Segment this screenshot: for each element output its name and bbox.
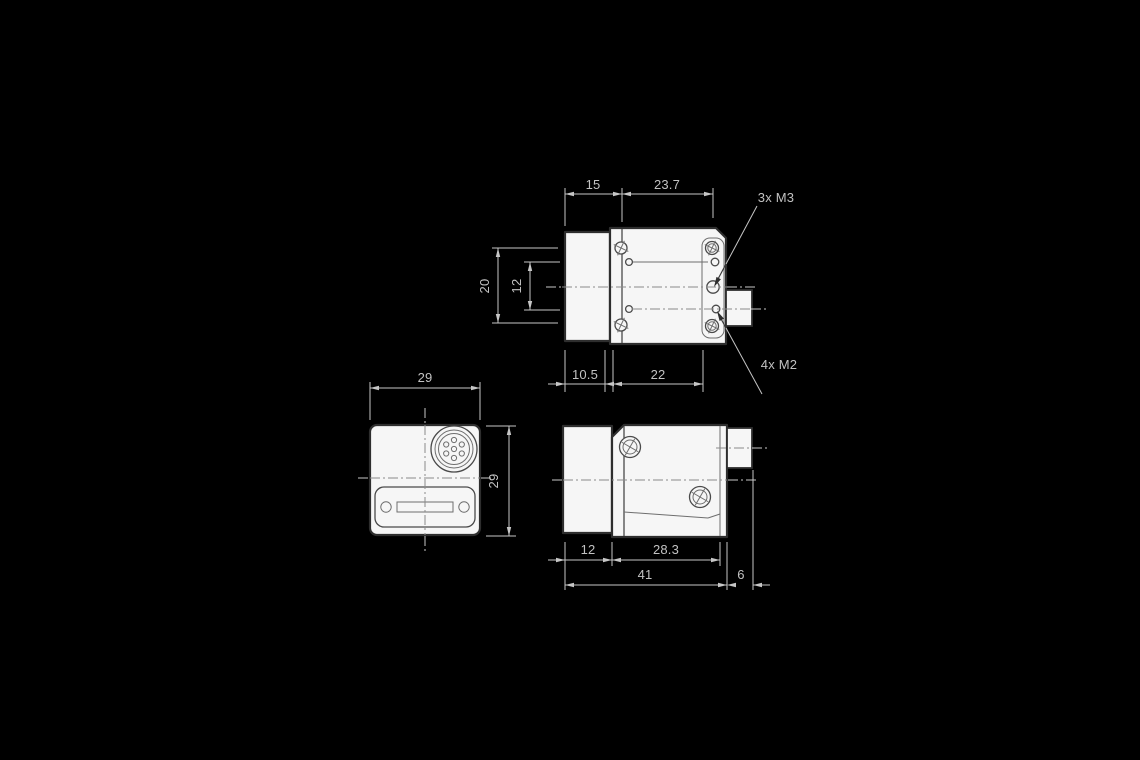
dim-label-front-height: 29 <box>486 474 501 489</box>
technical-drawing-canvas: 15 23.7 10.5 22 <box>0 0 1140 760</box>
dim-label-lens-bottom: 10.5 <box>572 367 598 382</box>
dim-label-hole-span-inner: 12 <box>509 279 524 294</box>
m2-thread-label: 4x M2 <box>761 357 797 372</box>
dim-label-total-length: 41 <box>638 567 653 582</box>
dim-label-connector-depth: 6 <box>737 567 744 582</box>
dim-label-lens-offset: 15 <box>586 177 601 192</box>
dim-label-hole-span-outer: 20 <box>477 279 492 294</box>
dim-label-body-top: 23.7 <box>654 177 680 192</box>
dim-label-rear-section: 28.3 <box>653 542 679 557</box>
screw-head-lower <box>690 487 711 508</box>
dim-label-front-section: 12 <box>581 542 596 557</box>
connector-block <box>726 290 752 326</box>
m3-thread-label: 3x M3 <box>758 190 794 205</box>
dim-label-front-width: 29 <box>418 370 433 385</box>
dim-label-body-bottom: 22 <box>651 367 666 382</box>
drawing-background <box>0 0 1140 760</box>
screw-head-upper <box>620 437 641 458</box>
